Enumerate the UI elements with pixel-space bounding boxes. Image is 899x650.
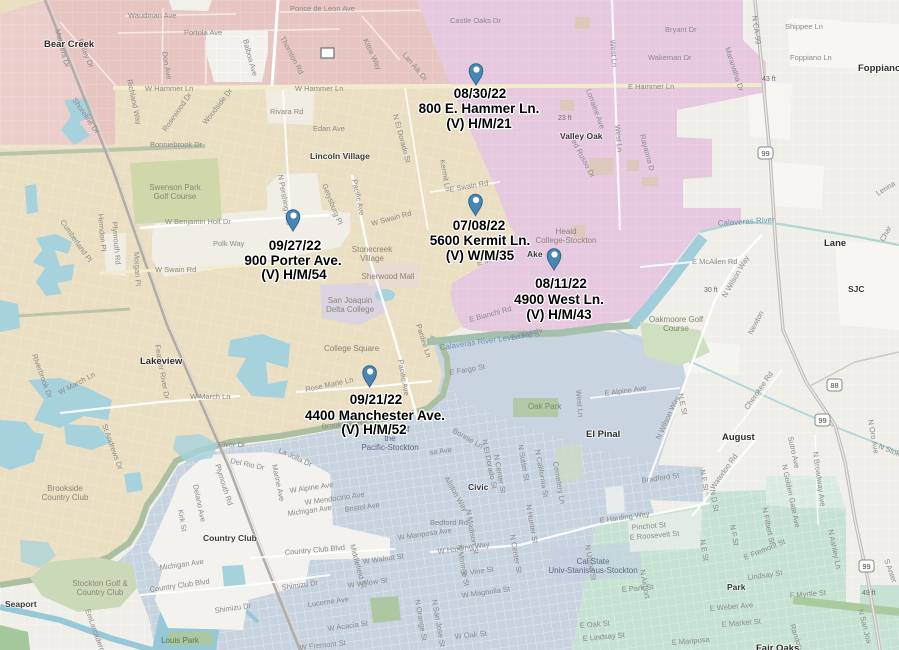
svg-text:W March Ln: W March Ln [190, 392, 230, 401]
svg-text:09/21/22: 09/21/22 [350, 392, 403, 407]
svg-text:Golf Course: Golf Course [154, 192, 197, 201]
svg-text:Lakeview: Lakeview [140, 356, 183, 367]
svg-text:River Dr: River Dr [218, 440, 246, 449]
svg-text:(V) H/M/43: (V) H/M/43 [526, 307, 592, 322]
svg-text:900 Porter Ave.: 900 Porter Ave. [244, 253, 341, 268]
svg-text:Bedford Rd: Bedford Rd [430, 518, 468, 527]
svg-text:Bonniebrook Dr: Bonniebrook Dr [150, 140, 203, 149]
svg-text:Stockton Golf &: Stockton Golf & [72, 579, 128, 588]
svg-text:Portola Ave: Portola Ave [184, 28, 222, 37]
svg-text:Castle Oaks Dr: Castle Oaks Dr [450, 16, 501, 25]
svg-text:Ake: Ake [527, 249, 543, 259]
svg-text:23 ft: 23 ft [558, 115, 572, 122]
svg-text:99: 99 [818, 416, 826, 425]
svg-text:Pacific-Stockton: Pacific-Stockton [361, 443, 418, 452]
svg-text:Shippee Ln: Shippee Ln [785, 22, 823, 31]
svg-text:El Pinal: El Pinal [586, 429, 620, 440]
svg-text:4900 West Ln.: 4900 West Ln. [514, 292, 604, 307]
svg-text:W Swain Rd: W Swain Rd [155, 265, 196, 274]
svg-text:88: 88 [830, 381, 838, 390]
svg-text:Cal State: Cal State [577, 557, 610, 566]
svg-text:Oak Park: Oak Park [528, 402, 562, 411]
svg-text:Lincoln Village: Lincoln Village [310, 151, 370, 161]
svg-text:99: 99 [862, 562, 870, 571]
svg-text:4400 Manchester Ave.: 4400 Manchester Ave. [305, 408, 445, 423]
svg-text:49 ft: 49 ft [862, 590, 876, 597]
svg-text:Foppiano: Foppiano [858, 63, 899, 74]
svg-text:09/27/22: 09/27/22 [269, 238, 322, 253]
svg-text:E Hammer Ln: E Hammer Ln [628, 82, 674, 91]
svg-text:Louis Park: Louis Park [161, 636, 200, 645]
svg-text:Polk Way: Polk Way [213, 239, 245, 248]
svg-text:Rivara Rd: Rivara Rd [270, 107, 303, 116]
svg-text:07/08/22: 07/08/22 [453, 218, 506, 233]
svg-text:Course: Course [663, 324, 689, 333]
svg-text:College Square: College Square [324, 344, 380, 353]
svg-text:Valley Oak: Valley Oak [560, 131, 603, 141]
svg-text:(V) H/M/52: (V) H/M/52 [341, 422, 406, 437]
svg-text:43 ft: 43 ft [762, 76, 776, 83]
svg-text:W Benjamin Holt Dr: W Benjamin Holt Dr [165, 217, 231, 226]
svg-text:Foppiano Ln: Foppiano Ln [790, 53, 832, 62]
svg-text:800 E. Hammer Ln.: 800 E. Hammer Ln. [419, 101, 540, 116]
svg-text:Ponce de Leon Ave: Ponce de Leon Ave [290, 4, 355, 13]
svg-text:Waudman Ave: Waudman Ave [128, 11, 176, 20]
svg-text:San Joaquin: San Joaquin [328, 296, 372, 305]
svg-text:(V) W/M/35: (V) W/M/35 [446, 248, 515, 263]
svg-text:Civic: Civic [468, 482, 489, 492]
svg-text:Swenson Park: Swenson Park [149, 183, 202, 192]
svg-text:Village: Village [360, 254, 384, 263]
svg-text:08/11/22: 08/11/22 [535, 276, 587, 291]
svg-text:Country Club: Country Club [203, 533, 257, 543]
svg-text:Oakmoore Golf: Oakmoore Golf [649, 315, 704, 324]
svg-text:Seaport: Seaport [5, 599, 37, 609]
svg-text:Bear Creek: Bear Creek [44, 39, 95, 50]
svg-text:30 ft: 30 ft [704, 287, 718, 294]
svg-text:08/30/22: 08/30/22 [454, 86, 507, 101]
svg-text:Lane: Lane [824, 238, 846, 249]
svg-text:Edan Ave: Edan Ave [313, 124, 345, 133]
svg-text:(V) H/M/21: (V) H/M/21 [446, 116, 512, 131]
svg-text:(V) H/M/54: (V) H/M/54 [261, 267, 327, 282]
svg-text:E McAllen Rd: E McAllen Rd [692, 257, 737, 266]
svg-text:Sherwood Mall: Sherwood Mall [362, 272, 415, 281]
svg-text:99: 99 [761, 149, 769, 158]
svg-text:5600 Kermit Ln.: 5600 Kermit Ln. [430, 233, 531, 248]
svg-text:College-Stockton: College-Stockton [536, 236, 597, 245]
svg-text:Heald: Heald [556, 227, 577, 236]
svg-text:Stonecreek: Stonecreek [352, 245, 393, 254]
svg-text:Brookside: Brookside [47, 484, 83, 493]
svg-text:Bryant Dr: Bryant Dr [665, 25, 697, 34]
svg-text:Country Club: Country Club [77, 588, 124, 597]
svg-text:Wakeman Dr: Wakeman Dr [648, 53, 692, 62]
svg-text:Park: Park [727, 582, 746, 592]
svg-text:August: August [722, 432, 756, 443]
svg-text:Fair Oaks: Fair Oaks [756, 643, 799, 650]
svg-text:Delta College: Delta College [326, 305, 375, 314]
svg-text:Country Club: Country Club [42, 493, 89, 502]
svg-text:SJC: SJC [848, 284, 865, 294]
svg-text:Univ-Stanislaus-Stockton: Univ-Stanislaus-Stockton [548, 566, 637, 575]
svg-text:W Hammer Ln: W Hammer Ln [295, 84, 343, 93]
svg-text:Morgan Pl: Morgan Pl [132, 252, 143, 287]
